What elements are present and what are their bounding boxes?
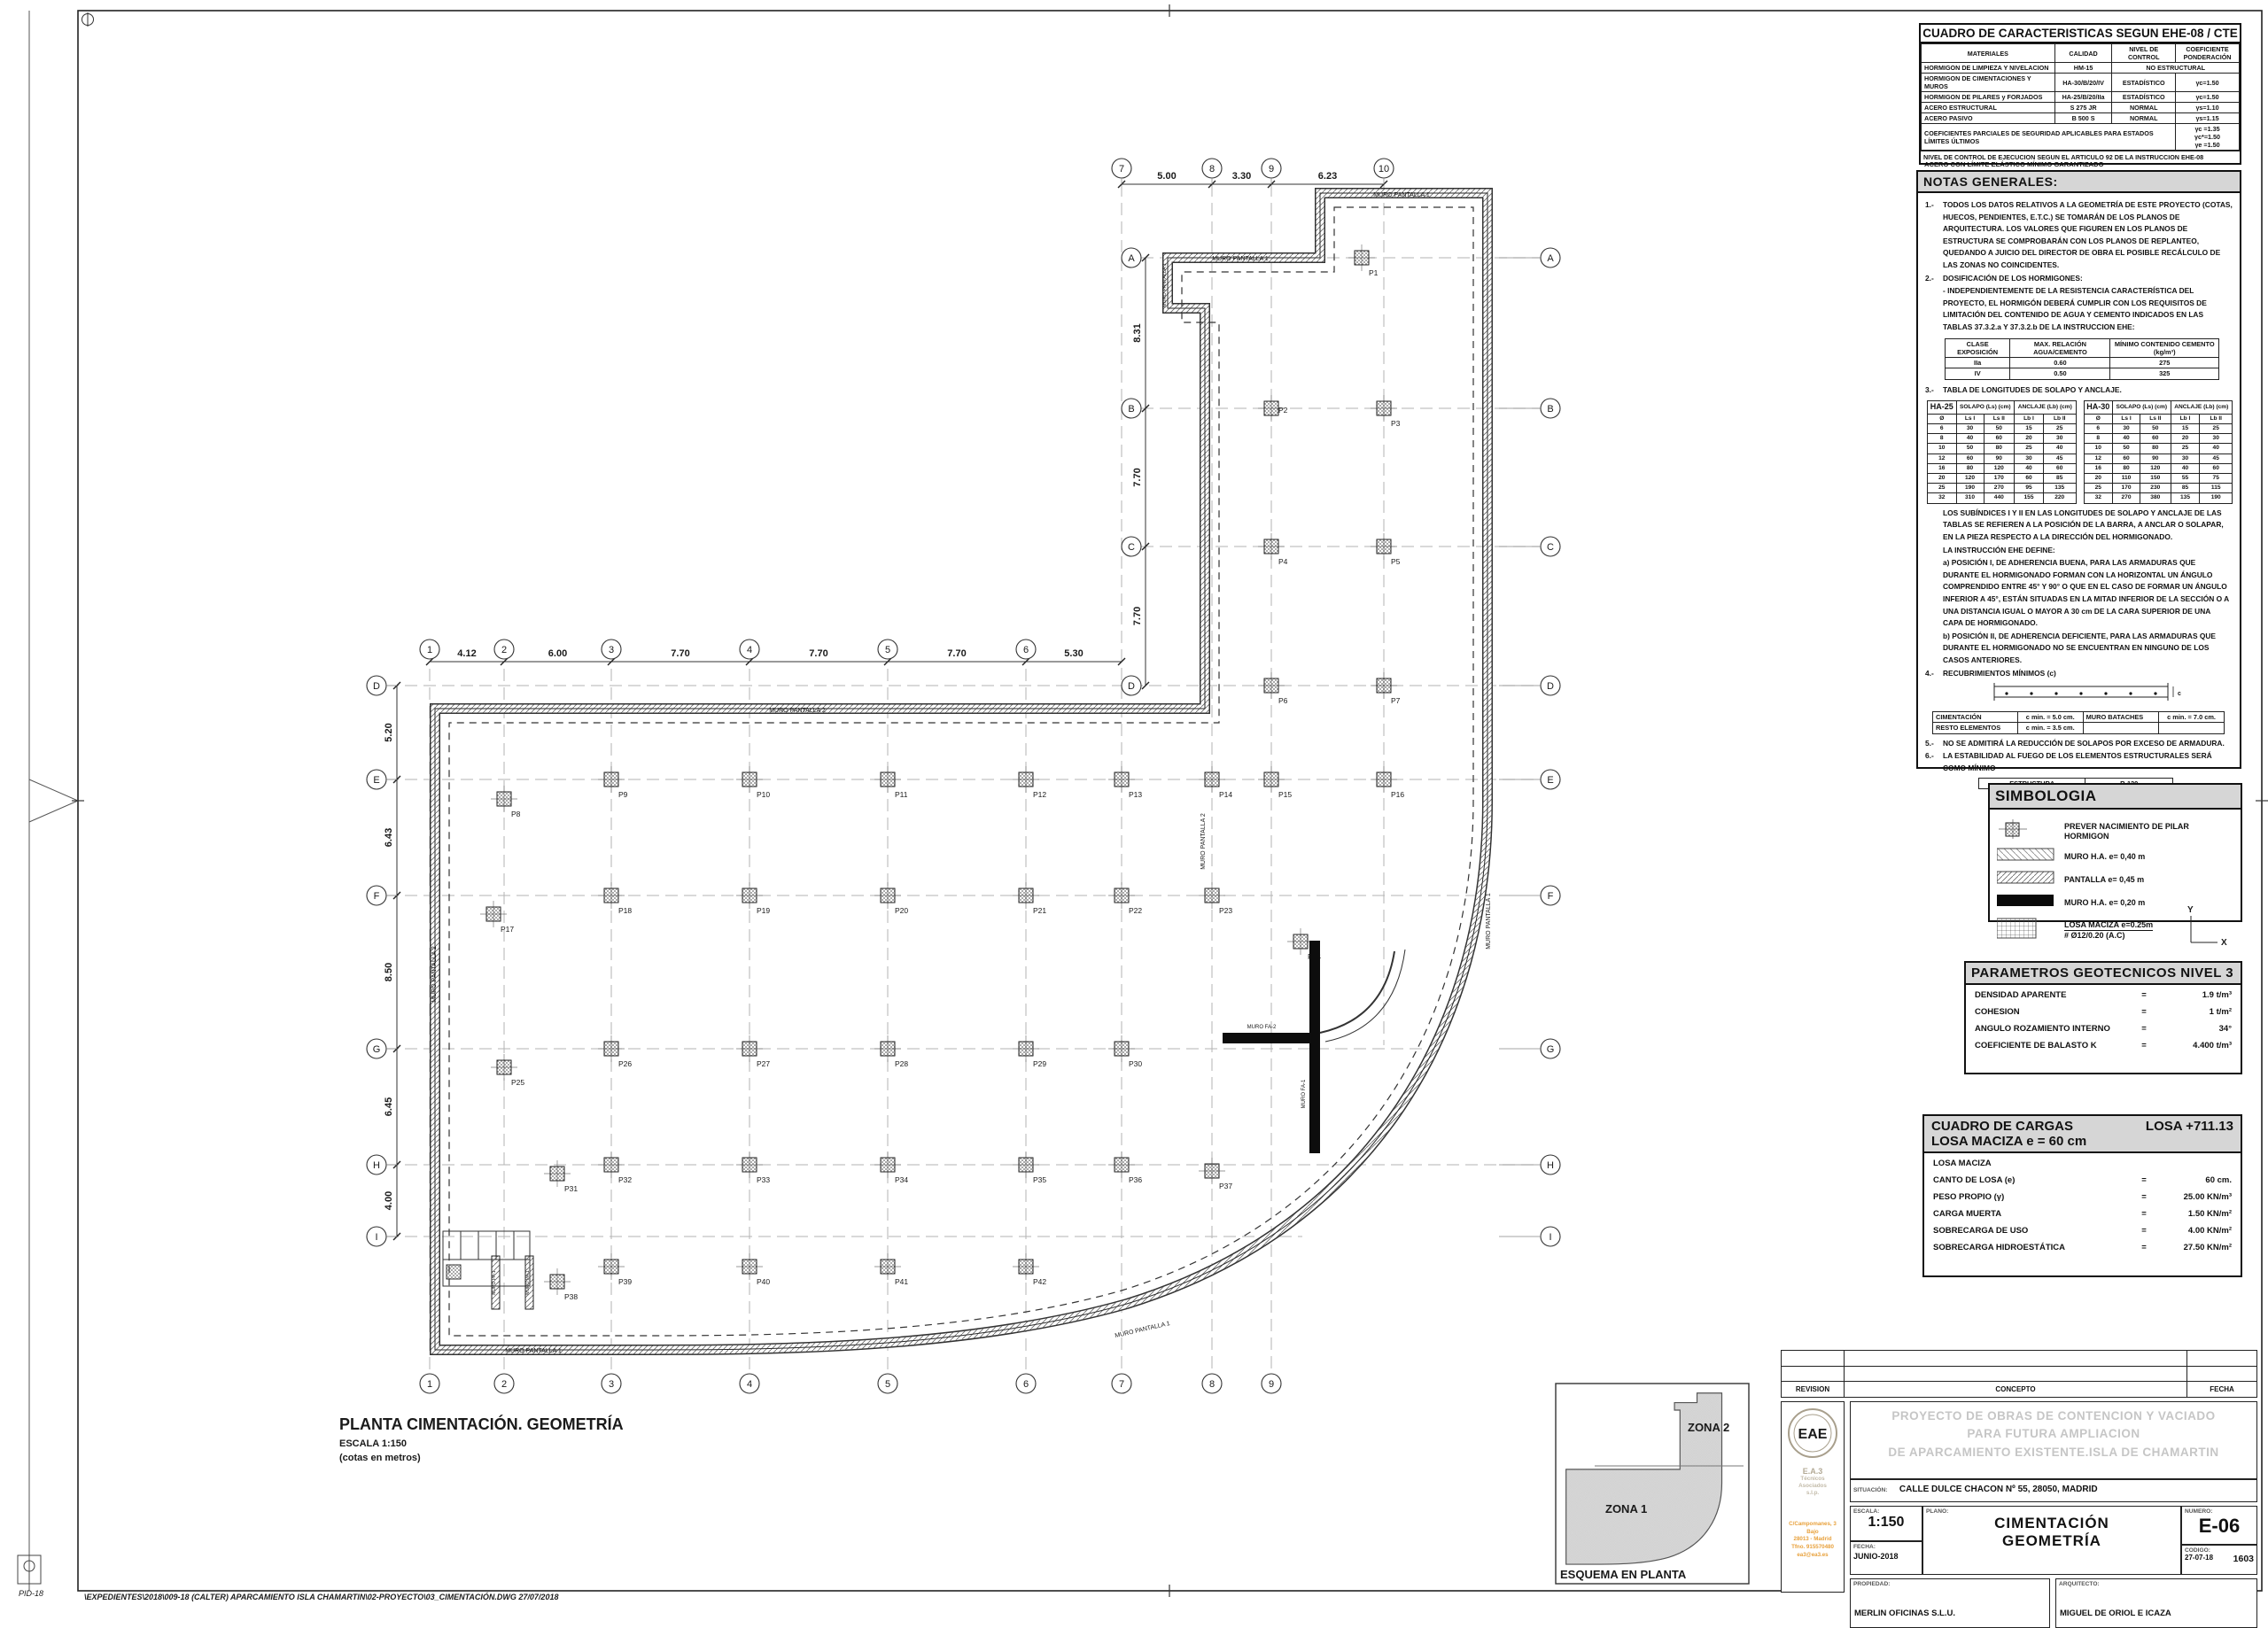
svg-text:P11: P11 [895, 790, 908, 799]
svg-text:P17: P17 [501, 925, 514, 934]
svg-text:6.23: 6.23 [1318, 171, 1337, 182]
revision-strip: REVISION CONCEPTO FECHA [1781, 1350, 2257, 1398]
svg-text:3: 3 [609, 645, 614, 655]
svg-text:7.70: 7.70 [1132, 607, 1143, 625]
svg-text:P3: P3 [1391, 419, 1401, 428]
project-title-line: DE APARCAMIENTO EXISTENTE.ISLA DE CHAMAR… [1851, 1444, 2256, 1461]
svg-text:P32: P32 [618, 1175, 632, 1184]
legend-label: MURO H.A. e= 0,20 m [2064, 898, 2145, 908]
svg-text:P1: P1 [1369, 268, 1379, 277]
stair-pit [443, 1231, 533, 1309]
footing-P17 [486, 907, 501, 921]
svg-text:P15: P15 [1278, 790, 1292, 799]
svg-text:2: 2 [501, 1379, 507, 1390]
footing-P35 [1019, 1158, 1033, 1172]
svg-text:MURO PANTALLA 1: MURO PANTALLA 1 [505, 1348, 562, 1354]
drawing-sheet: { "sheet": { "path_note": "\\EXPEDIENTES… [0, 0, 2268, 1601]
project-title-line: PROYECTO DE OBRAS DE CONTENCION Y VACIAD… [1851, 1407, 2256, 1425]
numero-label: NUMERO: [2182, 1507, 2256, 1515]
load-row: SOBRECARGA DE USO=4.00 KN/m² [1924, 1222, 2241, 1239]
load-row: CARGA MUERTA=1.50 KN/m² [1924, 1205, 2241, 1222]
table-row: HORMIGON DE LIMPIEZA Y NIVELACIONHM-15NO… [1922, 63, 2240, 74]
svg-text:P2: P2 [1278, 406, 1288, 415]
svg-text:MURO PANTALLA 1: MURO PANTALLA 1 [1162, 263, 1168, 307]
grid-lines [386, 184, 1541, 1374]
footing-P3 [1377, 401, 1391, 415]
propiedad-value: MERLIN OFICINAS S.L.U. [1851, 1587, 2049, 1618]
svg-text:D: D [1547, 681, 1554, 692]
characteristics-col-header: NIVEL DE CONTROL [2112, 44, 2176, 63]
svg-text:4: 4 [747, 645, 752, 655]
numero-value: E-06 [2182, 1515, 2256, 1538]
note-text: b) POSICIÓN II, DE ADHERENCIA DEFICIENTE… [1943, 631, 2233, 667]
perimeter-walls [435, 193, 1487, 1350]
legend-item: MURO H.A. e= 0,40 m [1997, 848, 2233, 866]
svg-text:P31: P31 [564, 1184, 578, 1193]
muro20-swatch-icon [1997, 894, 2064, 912]
legend-title: SIMBOLOGIA [1990, 785, 2241, 810]
svg-text:5.00: 5.00 [1157, 171, 1176, 182]
note-item: 1.-TODOS LOS DATOS RELATIVOS A LA GEOMET… [1925, 199, 2233, 272]
svg-text:3.30: 3.30 [1232, 171, 1251, 182]
svg-text:F: F [1548, 891, 1554, 902]
footing-P28 [881, 1042, 895, 1056]
svg-text:F: F [374, 891, 380, 902]
footing-P39 [604, 1260, 618, 1274]
svg-text:E: E [1547, 775, 1553, 786]
svg-text:6.45: 6.45 [384, 1097, 394, 1116]
table-row: HORMIGON DE PILARES y FORJADOSHA-25/B/20… [1922, 92, 2240, 103]
svg-text:P42: P42 [1033, 1277, 1046, 1286]
lap-length-tables: HA-25SOLAPO (Ls) (cm)ANCLAJE (Lb) (cm)ØL… [1927, 400, 2233, 503]
coef-row: COEFICIENTES PARCIALES DE SEGURIDAD APLI… [1922, 124, 2240, 151]
plano-label: PLANO: [1923, 1507, 2180, 1515]
geotech-row: ANGULO ROZAMIENTO INTERNO=34° [1966, 1020, 2241, 1037]
company-address: C/Campomanes, 3Bajo28013 - MadridTfno. 9… [1782, 1521, 1844, 1561]
characteristics-title: CUADRO DE CARACTERISTICAS SEGUN EHE-08 /… [1921, 25, 2240, 43]
svg-text:P21: P21 [1033, 906, 1046, 915]
svg-text:P10: P10 [757, 790, 770, 799]
geotech-row: COEFICIENTE DE BALASTO K=4.400 t/m³ [1966, 1037, 2241, 1054]
svg-text:5.30: 5.30 [1064, 648, 1083, 659]
note-text: a) POSICIÓN I, DE ADHERENCIA BUENA, PARA… [1943, 557, 2233, 630]
svg-text:PID-18: PID-18 [19, 1589, 43, 1598]
svg-text:MURO PANTALLA 1: MURO PANTALLA 1 [1212, 256, 1269, 262]
geotech-row: COHESION=1 t/m² [1966, 1004, 2241, 1020]
svg-text:P19: P19 [757, 906, 770, 915]
svg-text:(cotas en metros): (cotas en metros) [339, 1453, 421, 1463]
svg-text:MURO PANTALLA 1: MURO PANTALLA 1 [1115, 1321, 1171, 1339]
svg-text:X: X [2221, 938, 2227, 948]
svg-text:P16: P16 [1391, 790, 1404, 799]
fecha-label: FECHA: [1851, 1542, 1922, 1550]
legend-panel: SIMBOLOGIA PREVER NACIMIENTO DE PILAR HO… [1988, 783, 2242, 922]
svg-text:7: 7 [1119, 164, 1124, 174]
svg-text:9: 9 [1269, 164, 1274, 174]
footing-P2 [1264, 401, 1278, 415]
load-row: SOBRECARGA HIDROESTÁTICA=27.50 KN/m² [1924, 1239, 2241, 1256]
svg-text:P20: P20 [895, 906, 908, 915]
footing-P41 [881, 1260, 895, 1274]
characteristics-table-panel: CUADRO DE CARACTERISTICAS SEGUN EHE-08 /… [1919, 23, 2241, 165]
svg-text:1: 1 [427, 1379, 432, 1390]
svg-text:P27: P27 [757, 1059, 770, 1068]
legend-label: PREVER NACIMIENTO DE PILAR HORMIGON [2064, 822, 2233, 841]
svg-text:8: 8 [1209, 1379, 1215, 1390]
company-name: E.A.3 [1782, 1467, 1844, 1476]
note-item: 2.-DOSIFICACIÓN DE LOS HORMIGONES: [1925, 273, 2233, 285]
svg-text:2: 2 [501, 645, 507, 655]
note-text: LA INSTRUCCIÓN EHE DEFINE: [1943, 545, 2233, 557]
svg-text:7.70: 7.70 [671, 648, 689, 659]
propiedad-label: PROPIEDAD: [1851, 1579, 2049, 1587]
geotech-title: PARAMETROS GEOTECNICOS NIVEL 3 [1966, 963, 2241, 985]
svg-text:P18: P18 [618, 906, 632, 915]
axis-icon: YX [2179, 903, 2228, 952]
situacion-label: SITUACIÓN: [1851, 1485, 1890, 1493]
svg-text:5: 5 [885, 645, 890, 655]
svg-text:E: E [373, 775, 379, 786]
svg-text:Y: Y [2187, 905, 2194, 915]
note-item: 6.-LA ESTABILIDAD AL FUEGO DE LOS ELEMEN… [1925, 750, 2233, 774]
svg-text:C: C [1128, 542, 1135, 553]
characteristics-col-header: MATERIALES [1922, 44, 2055, 63]
svg-text:P36: P36 [1129, 1175, 1142, 1184]
fecha-value: JUNIO-2018 [1851, 1550, 1922, 1562]
table-row: HORMIGON DE CIMENTACIONES Y MUROSHA-30/B… [1922, 74, 2240, 92]
file-path-note: \EXPEDIENTES\2018\009-18 (CALTER) APARCA… [84, 1592, 558, 1601]
svg-text:MURO FA-1: MURO FA-1 [1301, 1079, 1307, 1108]
propiedad-box: PROPIEDAD: MERLIN OFICINAS S.L.U. [1850, 1578, 2050, 1628]
svg-text:ESCALA 1:150: ESCALA 1:150 [339, 1438, 407, 1449]
footing-P24 [1293, 934, 1308, 949]
svg-text:4.00: 4.00 [384, 1191, 394, 1210]
svg-text:G: G [1547, 1044, 1555, 1055]
svg-text:P39: P39 [618, 1277, 632, 1286]
svg-text:P26: P26 [618, 1059, 632, 1068]
svg-text:A: A [1547, 253, 1554, 264]
footing-P19 [742, 888, 757, 903]
footing-P22 [1115, 888, 1129, 903]
svg-text:P33: P33 [757, 1175, 770, 1184]
arquitecto-box: ARQUITECTO: MIGUEL DE ORIOL E ICAZA [2055, 1578, 2257, 1628]
svg-text:P6: P6 [1278, 696, 1288, 705]
footing-P13 [1115, 772, 1129, 787]
min-cover-table: CIMENTACIÓNc min. = 5.0 cm.MURO BATACHES… [1932, 711, 2225, 734]
footing-P38 [550, 1275, 564, 1289]
codigo-label: CODIGO: [2182, 1546, 2256, 1554]
loads-slab-level: LOSA +711.13 [2146, 1119, 2233, 1134]
load-row: CANTO DE LOSA (e)=60 cm. [1924, 1172, 2241, 1189]
svg-text:4: 4 [747, 1379, 752, 1390]
footing-P25 [497, 1060, 511, 1074]
footing-P7 [1377, 678, 1391, 693]
svg-text:P30: P30 [1129, 1059, 1142, 1068]
plano-line2: GEOMETRÍA [1923, 1532, 2180, 1550]
characteristics-table: MATERIALESCALIDADNIVEL DE CONTROLCOEFICI… [1921, 43, 2240, 151]
footing-P21 [1019, 888, 1033, 903]
revision-header: REVISION [1782, 1382, 1845, 1398]
note-text: LOS SUBÍNDICES I Y II EN LAS LONGITUDES … [1943, 508, 2233, 544]
table-row: ACERO ESTRUCTURALS 275 JRNORMALγs=1.10 [1922, 103, 2240, 113]
company-logo-icon: EAE [1785, 1406, 1840, 1461]
situacion-value: CALLE DULCE CHACON Nº 55, 28050, MADRID [1894, 1485, 2098, 1494]
svg-text:6: 6 [1023, 1379, 1029, 1390]
svg-text:P37: P37 [1219, 1182, 1232, 1190]
footing-P32 [604, 1158, 618, 1172]
load-row: PESO PROPIO (γ)=25.00 KN/m³ [1924, 1189, 2241, 1205]
svg-text:6: 6 [1023, 645, 1029, 655]
cover-diagram: c [1987, 681, 2233, 709]
svg-text:I: I [375, 1232, 377, 1243]
company-line4: s.l.p. [1782, 1490, 1844, 1497]
footing-P18 [604, 888, 618, 903]
svg-text:D: D [373, 681, 380, 692]
svg-text:5.20: 5.20 [384, 723, 394, 741]
svg-text:P5: P5 [1391, 557, 1401, 566]
svg-text:MURO PANTALLA 2: MURO PANTALLA 2 [769, 708, 826, 714]
svg-text:C: C [1547, 542, 1554, 553]
svg-text:P7: P7 [1391, 696, 1401, 705]
footing-P20 [881, 888, 895, 903]
legend-item: PANTALLA e= 0,45 m [1997, 871, 2233, 889]
svg-text:A: A [1128, 253, 1135, 264]
svg-text:8: 8 [1209, 164, 1215, 174]
footing-P23 [1205, 888, 1219, 903]
column-footings: P1P2P3P4P5P6P7P8P9P10P11P12P13P14P15P16P… [480, 244, 1404, 1301]
note-item: 5.-NO SE ADMITIRÁ LA REDUCCIÓN DE SOLAPO… [1925, 738, 2233, 750]
arquitecto-label: ARQUITECTO: [2056, 1579, 2256, 1587]
footing-P14 [1205, 772, 1219, 787]
losa-swatch-icon [1997, 917, 2064, 944]
svg-text:PLANTA CIMENTACIÓN. GEOMETRÍA: PLANTA CIMENTACIÓN. GEOMETRÍA [339, 1415, 624, 1433]
svg-text:ESQUEMA EN PLANTA: ESQUEMA EN PLANTA [1560, 1568, 1687, 1581]
footing-P5 [1377, 539, 1391, 554]
loads-table-panel: CUADRO DE CARGASLOSA +711.13 LOSA MACIZA… [1922, 1114, 2242, 1277]
characteristics-col-header: COEFICIENTE PONDERACIÓN [2176, 44, 2240, 63]
svg-text:H: H [373, 1160, 380, 1171]
footing-P10 [742, 772, 757, 787]
company-column: EAE E.A.3 Técnicos Asociados s.l.p. C/Ca… [1781, 1401, 1845, 1593]
svg-text:c: c [2178, 691, 2181, 697]
loads-header: CUADRO DE CARGASLOSA +711.13 LOSA MACIZA… [1924, 1116, 2241, 1153]
svg-text:B: B [1128, 404, 1134, 415]
fecha-header: FECHA [2187, 1382, 2257, 1398]
footing-P12 [1019, 772, 1033, 787]
company-line3: Asociados [1782, 1483, 1844, 1490]
footing-P31 [550, 1167, 564, 1181]
geotech-row: DENSIDAD APARENTE=1.9 t/m³ [1966, 987, 2241, 1004]
fecha-box: FECHA: JUNIO-2018 [1850, 1541, 1922, 1575]
svg-text:9: 9 [1269, 1379, 1274, 1390]
svg-text:I: I [1549, 1232, 1551, 1243]
svg-text:P13: P13 [1129, 790, 1142, 799]
footing-P40 [742, 1260, 757, 1274]
notes-title: NOTAS GENERALES: [1918, 172, 2240, 193]
svg-text:8.50: 8.50 [384, 963, 394, 981]
situacion-box: SITUACIÓN: CALLE DULCE CHACON Nº 55, 280… [1850, 1479, 2257, 1502]
table-row: ACERO PASIVOB 500 SNORMALγs=1.15 [1922, 113, 2240, 124]
ramp-walls [1223, 941, 1405, 1153]
key-plan: ZONA 2ZONA 1ESQUEMA EN PLANTA [1556, 1384, 1749, 1584]
footing-P11 [881, 772, 895, 787]
svg-text:10: 10 [1379, 164, 1389, 174]
svg-text:P41: P41 [895, 1277, 908, 1286]
svg-text:P35: P35 [1033, 1175, 1046, 1184]
svg-text:P34: P34 [895, 1175, 908, 1184]
svg-text:P40: P40 [757, 1277, 770, 1286]
arquitecto-value: MIGUEL DE ORIOL E ICAZA [2056, 1587, 2256, 1618]
project-title-box: PROYECTO DE OBRAS DE CONTENCION Y VACIAD… [1850, 1401, 2257, 1479]
svg-text:4.12: 4.12 [457, 648, 476, 659]
svg-text:P38: P38 [564, 1292, 578, 1301]
svg-text:7: 7 [1119, 1379, 1124, 1390]
svg-text:7.70: 7.70 [1132, 468, 1143, 486]
footing-P34 [881, 1158, 895, 1172]
exposure-table: CLASE EXPOSICIÓNMAX. RELACIÓN AGUA/CEMEN… [1945, 338, 2219, 380]
escala-value: 1:150 [1851, 1515, 1922, 1531]
pantalla45-swatch-icon [1997, 871, 2064, 889]
svg-text:1: 1 [427, 645, 432, 655]
footing-P15 [1264, 772, 1278, 787]
svg-text:G: G [373, 1044, 381, 1055]
note-item: 3.-TABLA DE LONGITUDES DE SOLAPO Y ANCLA… [1925, 384, 2233, 397]
svg-text:P9: P9 [618, 790, 628, 799]
legend-item: PREVER NACIMIENTO DE PILAR HORMIGON [1997, 819, 2233, 843]
footing-P27 [742, 1042, 757, 1056]
codigo-value: 27-07-18 [2185, 1554, 2213, 1564]
title-block: REVISION CONCEPTO FECHA EAE E.A.3 Técnic… [1781, 1350, 2257, 1593]
svg-text:MURO PANTALLA 2: MURO PANTALLA 2 [431, 946, 438, 1003]
characteristics-col-header: CALIDAD [2054, 44, 2112, 63]
svg-text:P12: P12 [1033, 790, 1046, 799]
project-title-line: PARA FUTURA AMPLIACION [1851, 1425, 2256, 1443]
escala-label: ESCALA: [1851, 1507, 1922, 1515]
pid-mark: PID-18 [18, 1555, 43, 1598]
footing-P29 [1019, 1042, 1033, 1056]
svg-text:6.00: 6.00 [548, 648, 567, 659]
legend-label: LOSA MACIZA e=0.25m# Ø12/0.20 (A.C) [2064, 920, 2153, 941]
plan-caption: PLANTA CIMENTACIÓN. GEOMETRÍAESCALA 1:15… [339, 1415, 624, 1463]
svg-text:MURO PANTALLA 1: MURO PANTALLA 1 [1373, 192, 1430, 198]
svg-text:P22: P22 [1129, 906, 1142, 915]
svg-text:MURO FA-2: MURO FA-2 [1247, 1025, 1277, 1030]
svg-text:P4: P4 [1278, 557, 1288, 566]
svg-text:P8: P8 [511, 810, 521, 818]
footing-P33 [742, 1158, 757, 1172]
footing-P42 [1019, 1260, 1033, 1274]
pilar-symbol-icon [1997, 819, 2064, 843]
svg-text:H: H [1547, 1160, 1554, 1171]
svg-text:5: 5 [885, 1379, 890, 1390]
note-text: - INDEPENDIENTEMENTE DE LA RESISTENCIA C… [1943, 285, 2233, 333]
svg-text:P28: P28 [895, 1059, 908, 1068]
loads-subtitle: LOSA MACIZA e = 60 cm [1931, 1134, 2233, 1149]
svg-text:ZONA 2: ZONA 2 [1688, 1421, 1729, 1434]
svg-text:\EXPEDIENTES\2018\009-18 (CAL: \EXPEDIENTES\2018\009-18 (CALTER) APARCA… [84, 1592, 558, 1601]
load-row: LOSA MACIZA [1924, 1155, 2241, 1172]
escala-box: ESCALA: 1:150 [1850, 1506, 1922, 1541]
svg-text:6.43: 6.43 [384, 828, 394, 847]
svg-text:MURO PANTALLA 1: MURO PANTALLA 1 [1486, 893, 1492, 950]
loads-title: CUADRO DE CARGAS [1931, 1119, 2073, 1134]
geotech-parameters-panel: PARAMETROS GEOTECNICOS NIVEL 3 DENSIDAD … [1964, 961, 2242, 1074]
svg-text:B: B [1547, 404, 1553, 415]
general-notes-panel: NOTAS GENERALES: 1.-TODOS LOS DATOS RELA… [1916, 170, 2241, 769]
muro40-swatch-icon [1997, 848, 2064, 866]
plano-line1: CIMENTACIÓN [1923, 1515, 2180, 1532]
svg-text:8.31: 8.31 [1132, 323, 1143, 342]
numero-box: NUMERO: E-06 [2181, 1506, 2257, 1545]
footing-P37 [1205, 1164, 1219, 1178]
svg-text:3: 3 [609, 1379, 614, 1390]
svg-text:EAE: EAE [1798, 1427, 1828, 1442]
footing-P6 [1264, 678, 1278, 693]
steel-note: ACERO CON LÍMITE ELÁSTICO MÍNIMO GARANTI… [1924, 160, 2104, 168]
svg-text:P14: P14 [1219, 790, 1232, 799]
footing-P30 [1115, 1042, 1129, 1056]
legend-label: MURO H.A. e= 0,40 m [2064, 852, 2145, 862]
footing-P16 [1377, 772, 1391, 787]
codigo-box: CODIGO: 27-07-18 1603 [2181, 1545, 2257, 1575]
svg-text:MURO PANTALLA 2: MURO PANTALLA 2 [1200, 813, 1207, 870]
svg-text:7.70: 7.70 [809, 648, 827, 659]
codigo-value2: 1603 [2233, 1554, 2254, 1564]
legend-label: PANTALLA e= 0,45 m [2064, 875, 2144, 885]
slab-edge-dashed [449, 207, 1473, 1336]
plano-box: PLANO: CIMENTACIÓN GEOMETRÍA [1922, 1506, 2181, 1575]
footing-P8 [497, 792, 511, 806]
svg-text:P25: P25 [511, 1078, 524, 1087]
svg-text:7.70: 7.70 [947, 648, 966, 659]
footing-P1 [1355, 251, 1369, 265]
svg-text:P29: P29 [1033, 1059, 1046, 1068]
svg-text:P23: P23 [1219, 906, 1232, 915]
footing-P4 [1264, 539, 1278, 554]
svg-text:D: D [1128, 681, 1135, 692]
footing-P9 [604, 772, 618, 787]
company-line2: Técnicos [1782, 1476, 1844, 1483]
concepto-header: CONCEPTO [1845, 1382, 2187, 1398]
note-item: 4.-RECUBRIMIENTOS MÍNIMOS (c) [1925, 668, 2233, 680]
svg-text:ZONA 1: ZONA 1 [1605, 1502, 1647, 1516]
footing-P26 [604, 1042, 618, 1056]
footing-P36 [1115, 1158, 1129, 1172]
